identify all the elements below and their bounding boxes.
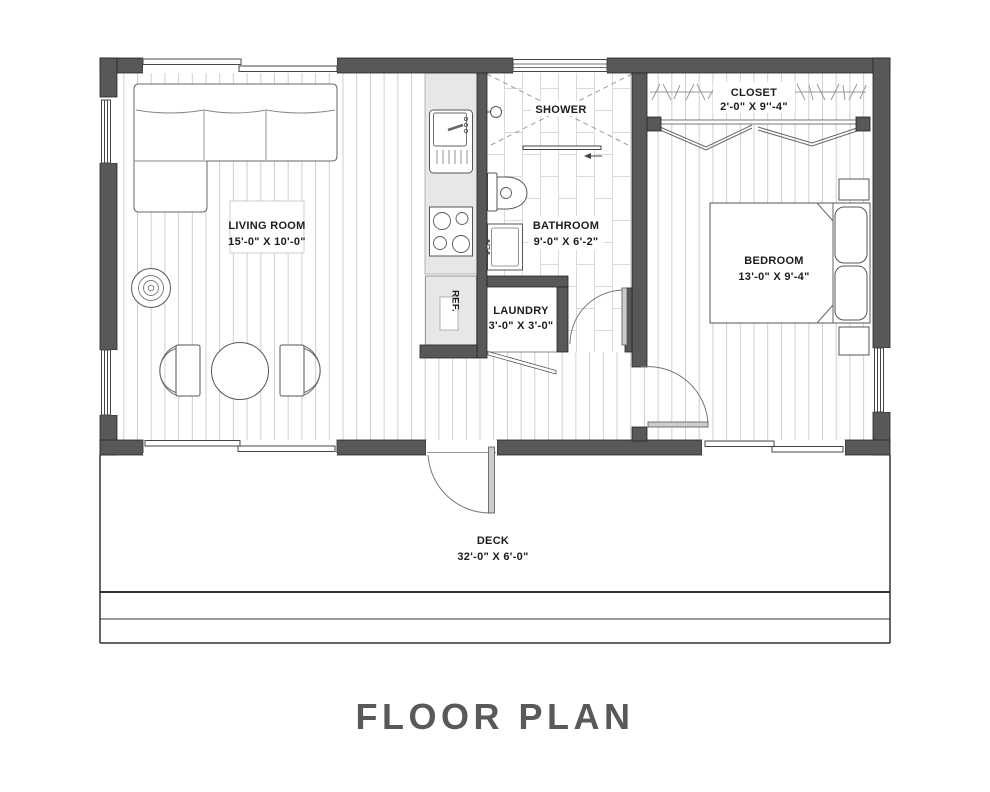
tub-chair-right-seat — [280, 345, 304, 396]
left-window-2-glass — [105, 350, 108, 415]
nightstand — [839, 327, 869, 355]
wall-top-mid — [337, 58, 513, 73]
wall-bottom-left-corner — [100, 440, 143, 455]
nightstand — [839, 179, 869, 200]
right-window-glass — [878, 348, 881, 412]
bedroom-door-leaf — [648, 422, 708, 427]
wall-bottom-seg1 — [337, 440, 426, 455]
vanity-faucet-dot — [487, 252, 490, 255]
ref-label: REF. — [450, 290, 461, 312]
shower-glass-door — [523, 146, 601, 150]
kitchen: REF. — [425, 73, 477, 345]
wall-top-right — [607, 58, 890, 73]
deck — [100, 455, 890, 643]
patio-slider-panel — [238, 446, 335, 452]
closet-front-wall — [660, 120, 857, 124]
shower-window — [513, 60, 607, 72]
entry-door-leaf — [489, 447, 495, 513]
laundry-label: LAUNDRY — [493, 305, 549, 317]
living-top-window-panel — [143, 59, 241, 65]
closet-wall-cap-left — [647, 117, 661, 131]
closet-dims: 2'-0" X 9''-4" — [720, 101, 788, 113]
closet-wall-cap-right — [856, 117, 870, 131]
living-top-window-panel — [239, 66, 337, 72]
pillow — [835, 207, 867, 263]
bedroom-window-panel — [705, 441, 774, 447]
page-title: FLOOR PLAN — [356, 696, 635, 737]
hall-floor-left — [420, 358, 487, 440]
wall-bottom-right-corner — [845, 440, 890, 455]
bathroom-label: BATHROOM — [533, 220, 599, 232]
wall-left-corner — [100, 58, 117, 97]
tub-chair-left-seat — [176, 345, 200, 396]
floor-plan-page: REF. — [0, 0, 990, 792]
bedroom-dims: 13'-0" X 9'-4" — [738, 271, 809, 283]
wall-right — [873, 58, 890, 348]
closet-label: CLOSET — [731, 87, 777, 99]
deck-dims: 32'-0" X 6'-0" — [457, 551, 528, 563]
wall-kitchen — [477, 73, 487, 358]
wall-laundry-right — [557, 287, 568, 352]
wall-bedroom-west — [632, 73, 647, 367]
entry-door-arc — [428, 455, 491, 513]
vanity-faucet-dot — [487, 240, 490, 243]
toilet-tank — [488, 173, 498, 211]
vanity — [488, 224, 523, 270]
wall-bottom-seg2 — [497, 440, 702, 455]
shower-valve — [491, 107, 502, 118]
bathroom-door-leaf — [622, 288, 627, 345]
shower-label: SHOWER — [535, 104, 586, 116]
pillow — [835, 266, 867, 320]
living-room-dims: 15'-0" X 10'-0" — [228, 236, 306, 248]
bedroom-window-panel — [772, 447, 843, 453]
wall-left-mid — [100, 163, 117, 350]
wall-kitchen-bottom — [420, 345, 477, 358]
laundry-dims: 3'-0" X 3'-0" — [489, 320, 554, 332]
floor-plan-drawing: REF. — [0, 0, 990, 792]
hall-floor — [487, 352, 632, 440]
bathroom-dims: 9'-0" X 6'-2" — [534, 236, 599, 248]
wall-bedroom-door-stub — [632, 427, 647, 441]
side-table — [132, 269, 171, 308]
bedroom-label: BEDROOM — [744, 255, 804, 267]
deck-label: DECK — [477, 535, 509, 547]
round-table — [212, 343, 269, 400]
left-window-1-glass — [105, 100, 108, 163]
living-room-label: LIVING ROOM — [228, 220, 305, 232]
wall-laundry-top — [487, 276, 568, 287]
patio-slider-panel — [145, 441, 240, 447]
